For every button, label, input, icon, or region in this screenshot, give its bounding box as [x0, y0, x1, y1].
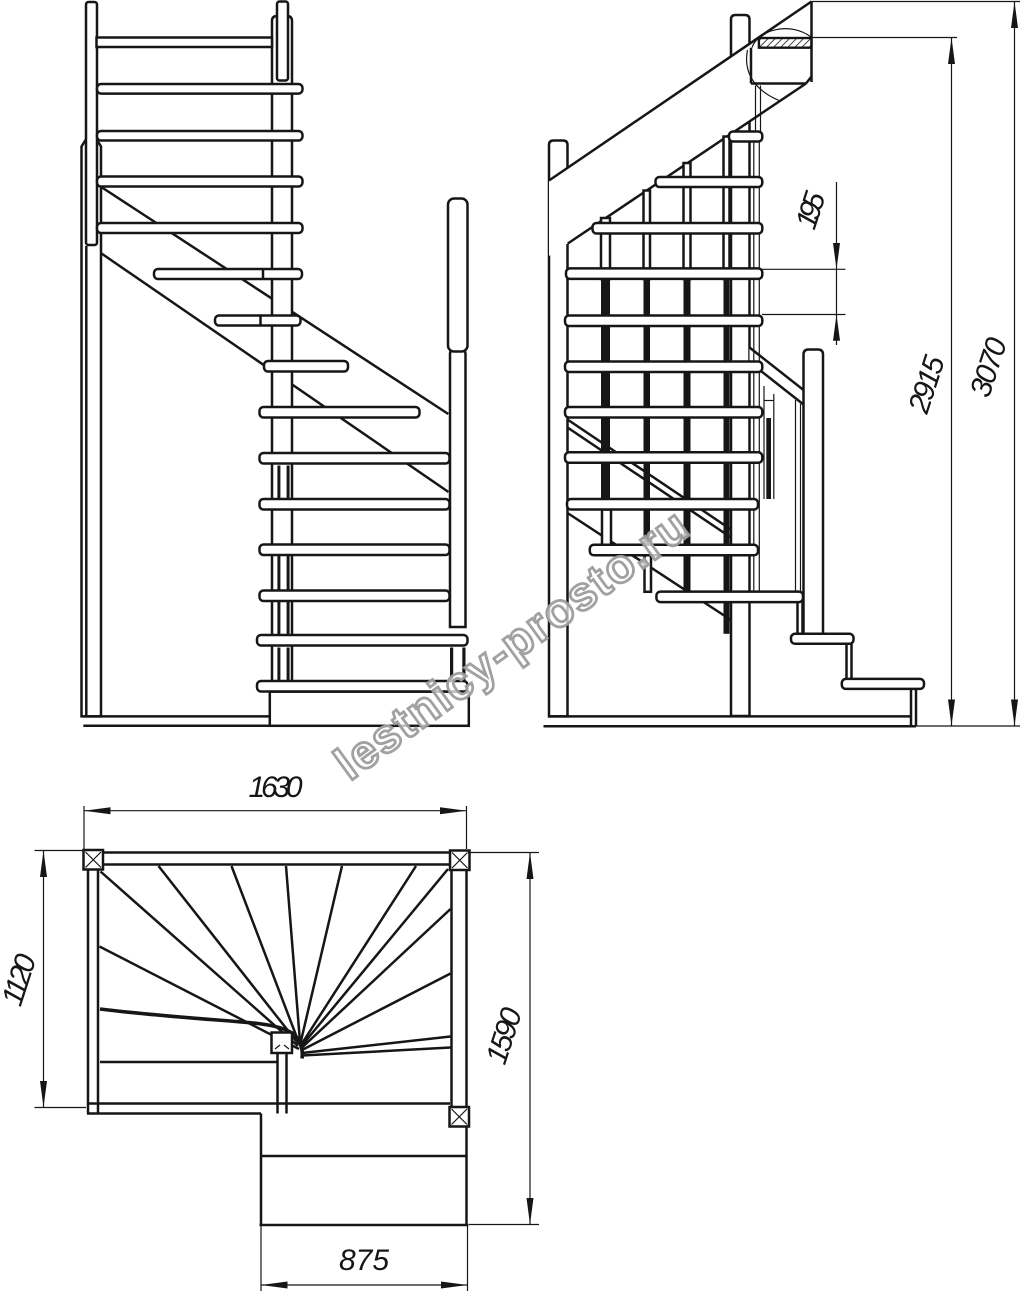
- svg-text:875: 875: [339, 1244, 389, 1277]
- svg-text:1630: 1630: [249, 771, 303, 804]
